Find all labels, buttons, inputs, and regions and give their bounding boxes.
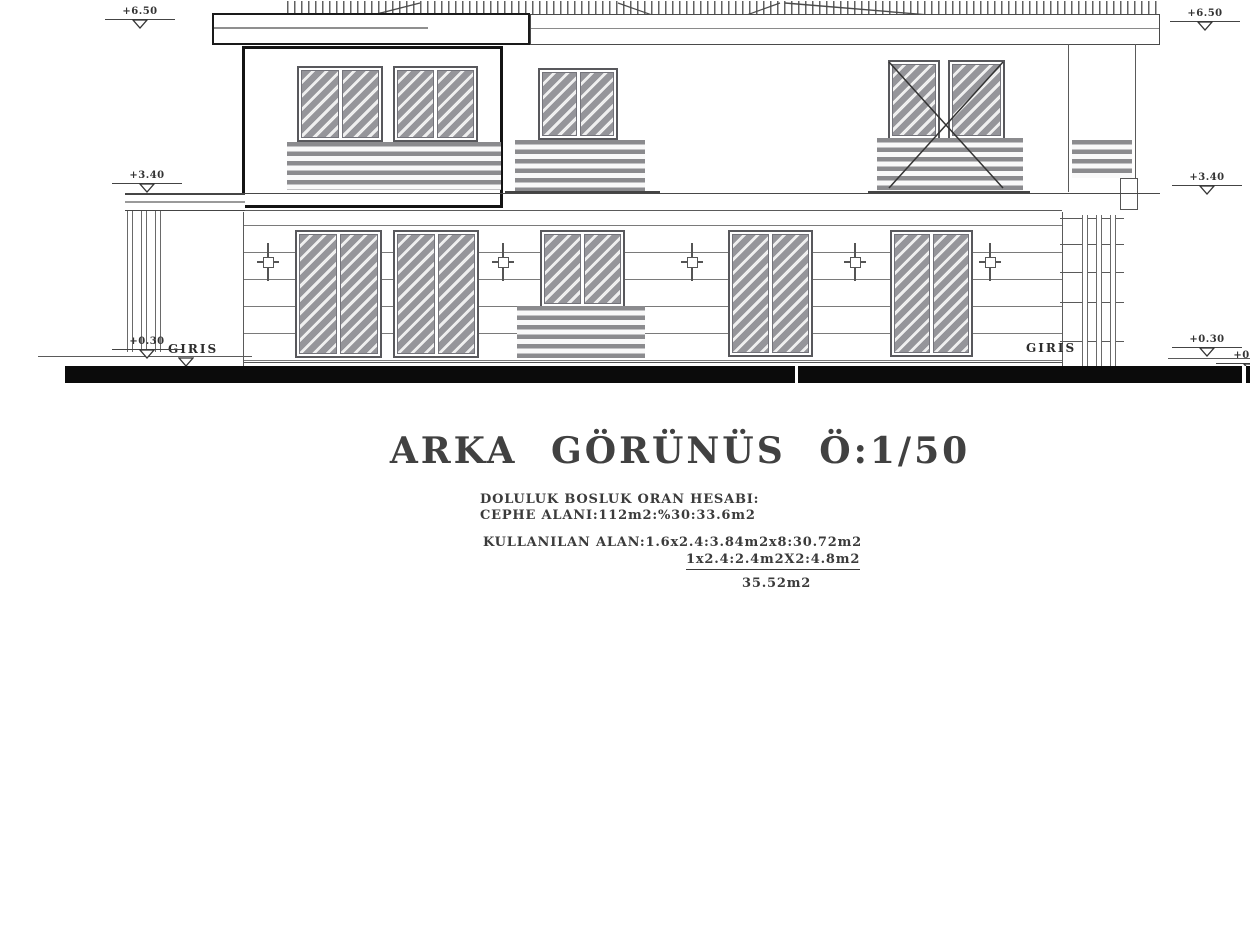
- ground-door-2: [393, 230, 479, 358]
- ground-door-1: [295, 230, 382, 358]
- drawing-title: ARKA GÖRÜNÜS Ö:1/50: [380, 430, 980, 472]
- door-glass-pane: [299, 234, 337, 354]
- elevation-triangle-icon: [1199, 185, 1215, 195]
- upper-middle-window: [538, 68, 618, 140]
- ground-bar-gap: [1242, 366, 1246, 383]
- trellis-post: [1082, 215, 1088, 366]
- elevation-marker-left-roof: +6.50: [105, 6, 175, 29]
- window-glass-pane: [580, 72, 615, 136]
- calc-used-area-line2: 1x2.4:2.4m2X2:4.8m2: [686, 552, 860, 570]
- wall-tie-icon: [492, 243, 514, 281]
- wall-tie-icon: [681, 243, 703, 281]
- elevation-value: +6.50: [1187, 8, 1222, 20]
- elevation-triangle-icon: [139, 349, 155, 359]
- upper-far-right-railing: [1072, 140, 1132, 178]
- elevation-marker-right-floor: +3.40: [1172, 172, 1242, 195]
- ground-middle-window: [540, 230, 625, 308]
- door-glass-pane: [933, 234, 969, 353]
- elevation-marker-left-entry: +0.30: [112, 336, 182, 359]
- ground-door-3: [728, 230, 813, 357]
- parapet-midline: [214, 27, 428, 29]
- elevation-marker-left-floor: +3.40: [112, 170, 182, 193]
- door-glass-pane: [732, 234, 769, 353]
- door-glass-pane: [340, 234, 378, 354]
- elevation-drawing-sheet: GIRIS GIRIS +6.50 +3.40 +0.30 +6.50 +3.4…: [0, 0, 1250, 930]
- elevation-value: +6.50: [122, 6, 157, 18]
- door-glass-pane: [894, 234, 930, 353]
- calc-facade-area: CEPHE ALANI:112m2:%30:33.6m2: [480, 508, 756, 523]
- canopy-post: [155, 211, 161, 352]
- calc-used-area-line1: KULLANILAN ALAN:1.6x2.4:3.84m2x8:30.72m2: [483, 535, 862, 550]
- canopy-post: [127, 211, 133, 352]
- upper-middle-balcony-railing: [515, 140, 645, 191]
- window-glass-pane: [397, 70, 434, 138]
- ground-level-bar: [65, 366, 1250, 383]
- x-brace-icon: [877, 60, 1023, 192]
- window-glass-pane: [544, 234, 581, 304]
- elevation-triangle-icon: [1199, 347, 1215, 357]
- door-glass-pane: [438, 234, 476, 354]
- ground-middle-railing: [517, 306, 645, 358]
- elevation-value: +0.00: [1233, 350, 1250, 362]
- facade-corner-left: [243, 212, 244, 366]
- calc-heading: DOLULUK BOSLUK ORAN HESABI:: [480, 492, 759, 507]
- floor-slab-line: [125, 193, 1160, 194]
- trellis-post: [1110, 215, 1116, 366]
- ground-bar-gap: [795, 366, 798, 383]
- elevation-triangle-icon: [1197, 21, 1213, 31]
- wall-bracket: [1120, 178, 1138, 210]
- window-glass-pane: [584, 234, 621, 304]
- roof-fascia-band: [530, 14, 1160, 45]
- entrance-canopy-slab: [125, 194, 245, 211]
- canopy-post: [141, 211, 147, 352]
- elevation-value: +3.40: [129, 170, 164, 182]
- door-glass-pane: [772, 234, 809, 353]
- window-glass-pane: [301, 70, 339, 138]
- terrace-window-left: [297, 66, 383, 142]
- calc-total: 35.52m2: [742, 576, 811, 591]
- wall-tie-icon: [844, 243, 866, 281]
- elevation-marker-right-roof: +6.50: [1170, 8, 1240, 31]
- elevation-triangle-icon: [139, 183, 155, 193]
- window-glass-pane: [437, 70, 474, 138]
- upper-right-wall-seam: [1068, 44, 1069, 192]
- elevation-value: +0.30: [1189, 334, 1224, 346]
- roof-parapet-box: [212, 13, 530, 45]
- elevation-triangle-icon: [132, 19, 148, 29]
- terrace-railing: [287, 142, 501, 190]
- terrace-box: [242, 46, 503, 208]
- terrace-window-right: [393, 66, 478, 142]
- ground-wall-top-line: [243, 210, 1062, 211]
- wall-tie-icon: [257, 243, 279, 281]
- window-glass-pane: [342, 70, 380, 138]
- upper-right-window-group: [877, 60, 1023, 192]
- ground-door-4: [890, 230, 973, 357]
- elevation-value: +3.40: [1189, 172, 1224, 184]
- window-glass-pane: [542, 72, 577, 136]
- elevation-value: +0.30: [129, 336, 164, 348]
- wall-tie-icon: [979, 243, 1001, 281]
- canopy-midline: [125, 201, 245, 203]
- door-glass-pane: [397, 234, 435, 354]
- entrance-label-right: GIRIS: [1026, 341, 1076, 355]
- fascia-midline: [531, 28, 1159, 29]
- trellis-post: [1096, 215, 1102, 366]
